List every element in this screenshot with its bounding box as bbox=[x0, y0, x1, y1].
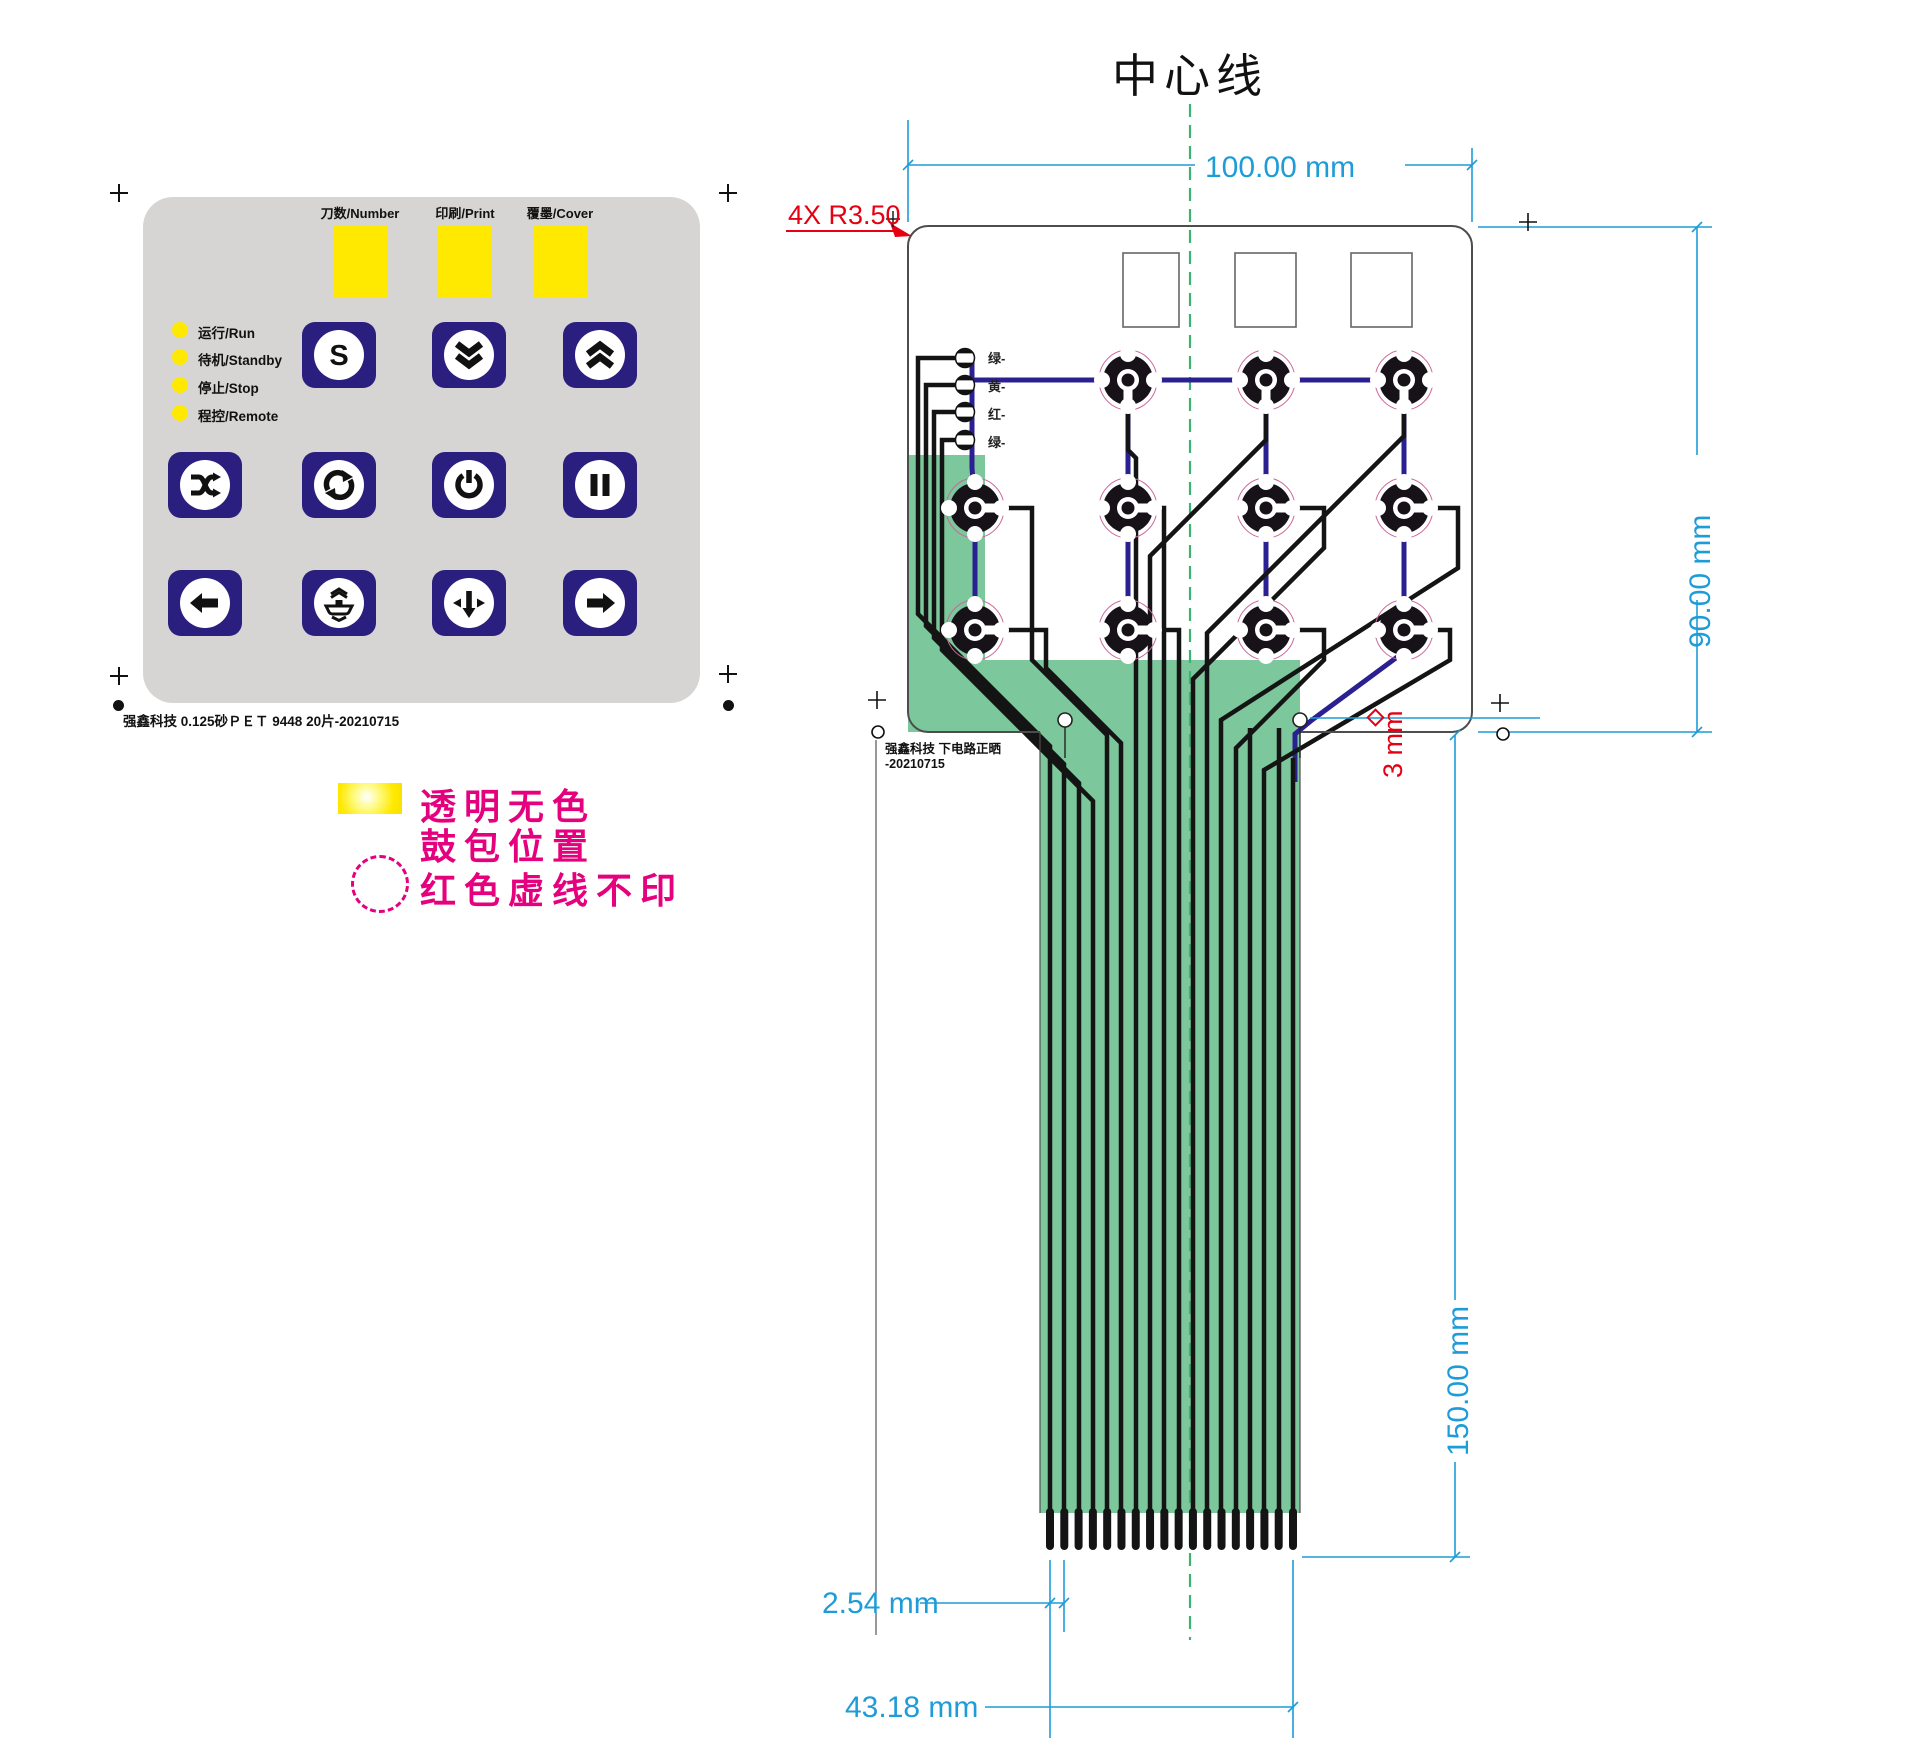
dim-width: 100.00 mm bbox=[1205, 151, 1355, 184]
circuit-note-line1: 强鑫科技 下电路正晒 bbox=[885, 741, 1001, 756]
circuit-led-label-3: 红- bbox=[988, 407, 1005, 422]
dim-finger-pitch: 2.54 mm bbox=[822, 1587, 939, 1620]
window-cutouts bbox=[1123, 253, 1412, 327]
circuit-led-label-2: 黄- bbox=[988, 379, 1005, 394]
diagram-title: 中心线 bbox=[1112, 50, 1268, 102]
circuit-diagram: 绿- 黄- 红- 绿- bbox=[0, 0, 1920, 1752]
circuit-led-label-1: 绿- bbox=[988, 351, 1005, 366]
circuit-led-label-4: 绿- bbox=[988, 435, 1005, 450]
circuit-note-line2: -20210715 bbox=[885, 757, 945, 771]
dim-connector-width: 43.18 mm bbox=[845, 1691, 978, 1724]
drawing-canvas: 刀数/Number 印刷/Print 覆墨/Cover 运行/Run 待机/St… bbox=[0, 0, 1920, 1752]
corner-radius-note: 4X R3.50 bbox=[788, 200, 901, 230]
dim-tail-length: 150.00 mm bbox=[1442, 1306, 1475, 1456]
dim-height: 90.00 mm bbox=[1684, 515, 1717, 648]
dim-hole: 3 mm bbox=[1378, 711, 1408, 779]
connector-fingers bbox=[1050, 1512, 1293, 1546]
